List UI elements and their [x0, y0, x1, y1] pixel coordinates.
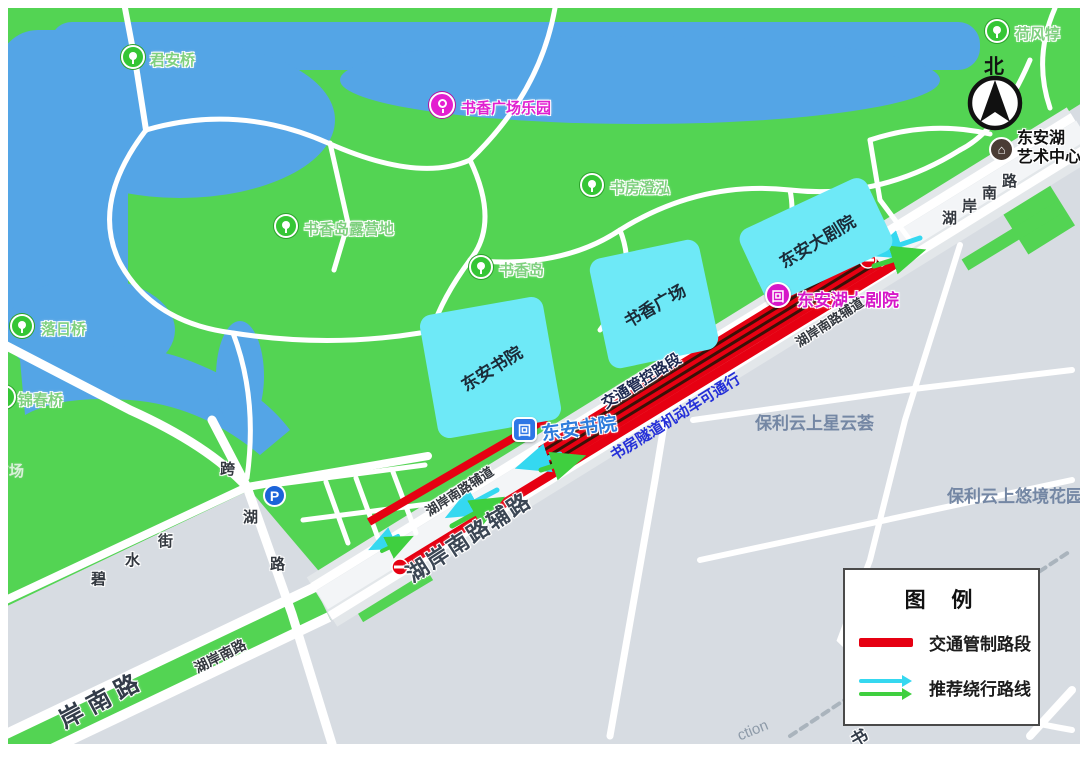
poi-label-shuxiang-island: 书香岛: [499, 259, 544, 280]
legend-title: 图 例: [849, 584, 1038, 614]
detour-arrow-green-swatch: [859, 692, 903, 696]
legend-row-detour: 推荐绕行路线: [845, 675, 1038, 700]
district-label-xingyunhui: 保利云上星云荟: [755, 409, 874, 434]
tree-icon: [282, 221, 290, 229]
tree-icon: [993, 26, 1001, 34]
legend-label-detour: 推荐绕行路线: [929, 675, 1031, 700]
poi-label-hefeng: 荷风犉: [1015, 23, 1060, 44]
detour-swatches: [859, 679, 913, 696]
park-poi-icon: [580, 173, 604, 197]
north-label: 北: [984, 50, 1004, 79]
tree-icon: [18, 321, 26, 329]
metro-station-icon: 回: [765, 282, 791, 308]
art-center-icon: ⌂: [989, 137, 1014, 162]
tree-icon: [477, 262, 485, 270]
building-label: 东安书院: [455, 339, 526, 396]
road-label-bishui-char: 碧: [91, 568, 106, 589]
park-poi-icon: [10, 314, 34, 338]
road-label-huannanlu-char: 岸: [962, 195, 977, 216]
building-label: 书香广场: [618, 276, 689, 332]
building-shuxiang-plaza: 书香广场: [588, 238, 721, 371]
tree-icon: [129, 52, 137, 60]
road-label-kuahu-char: 湖: [243, 506, 258, 527]
park-path: [432, 160, 485, 330]
poi-label-jinchunqiao: 锦春桥: [18, 389, 63, 410]
district-label-youjing: 保利云上悠境花园: [947, 482, 1080, 507]
compass-icon: [970, 78, 1020, 128]
road-label-bishui-char: 街: [158, 530, 173, 551]
road-label-huannanlu-char: 湖: [942, 207, 957, 228]
legend-label-restricted: 交通管制路段: [929, 630, 1031, 655]
road-label-kuahu-char: 路: [270, 553, 285, 574]
detour-arrow-cyan-swatch: [859, 679, 903, 683]
map-canvas[interactable]: 东安书院 书香广场 东安大剧院 君安桥 书香广场乐园 书香岛露营地 书香岛 书房…: [8, 8, 1080, 744]
road-label-bishui-char: 水: [125, 549, 140, 570]
park-poi-icon: [985, 19, 1009, 43]
road-label-huannanlu-char: 南: [982, 182, 997, 203]
art-center-line1: 东安湖: [1017, 130, 1065, 147]
road-label-kuahu-char: 跨: [220, 458, 235, 479]
metro-station-icon: 回: [512, 417, 537, 442]
parking-icon: P: [263, 484, 286, 507]
poi-label-shufang: 书房澄泓: [610, 177, 670, 198]
building-label: 东安大剧院: [773, 207, 859, 272]
poi-label-art-center: 东安湖 艺术中心: [1017, 129, 1080, 167]
restricted-road-swatch: [859, 638, 913, 647]
poi-label-partial-plaza: 广场: [8, 460, 24, 481]
park-poi-icon: [469, 255, 493, 279]
poi-label-luoriqiao: 落日桥: [41, 318, 86, 339]
tree-icon: [588, 180, 596, 188]
road-label-huannanlu-char: 路: [1002, 170, 1017, 191]
poi-label-campsite: 书香岛露营地: [304, 218, 394, 239]
park-path: [330, 143, 348, 270]
art-center-line2: 艺术中心: [1017, 149, 1080, 166]
park-poi-icon: [121, 45, 145, 69]
park-poi-icon: [274, 214, 298, 238]
park-path: [356, 478, 378, 538]
legend-row-restricted: 交通管制路段: [845, 630, 1038, 655]
attraction-poi-icon: [429, 92, 455, 118]
poi-label-junanqiao: 君安桥: [150, 49, 195, 70]
balloon-icon: [438, 99, 447, 108]
poi-label-plaza-park: 书香广场乐园: [461, 97, 551, 118]
legend-box: 图 例 交通管制路段 推荐绕行路线: [843, 568, 1040, 726]
park-path: [870, 128, 990, 140]
